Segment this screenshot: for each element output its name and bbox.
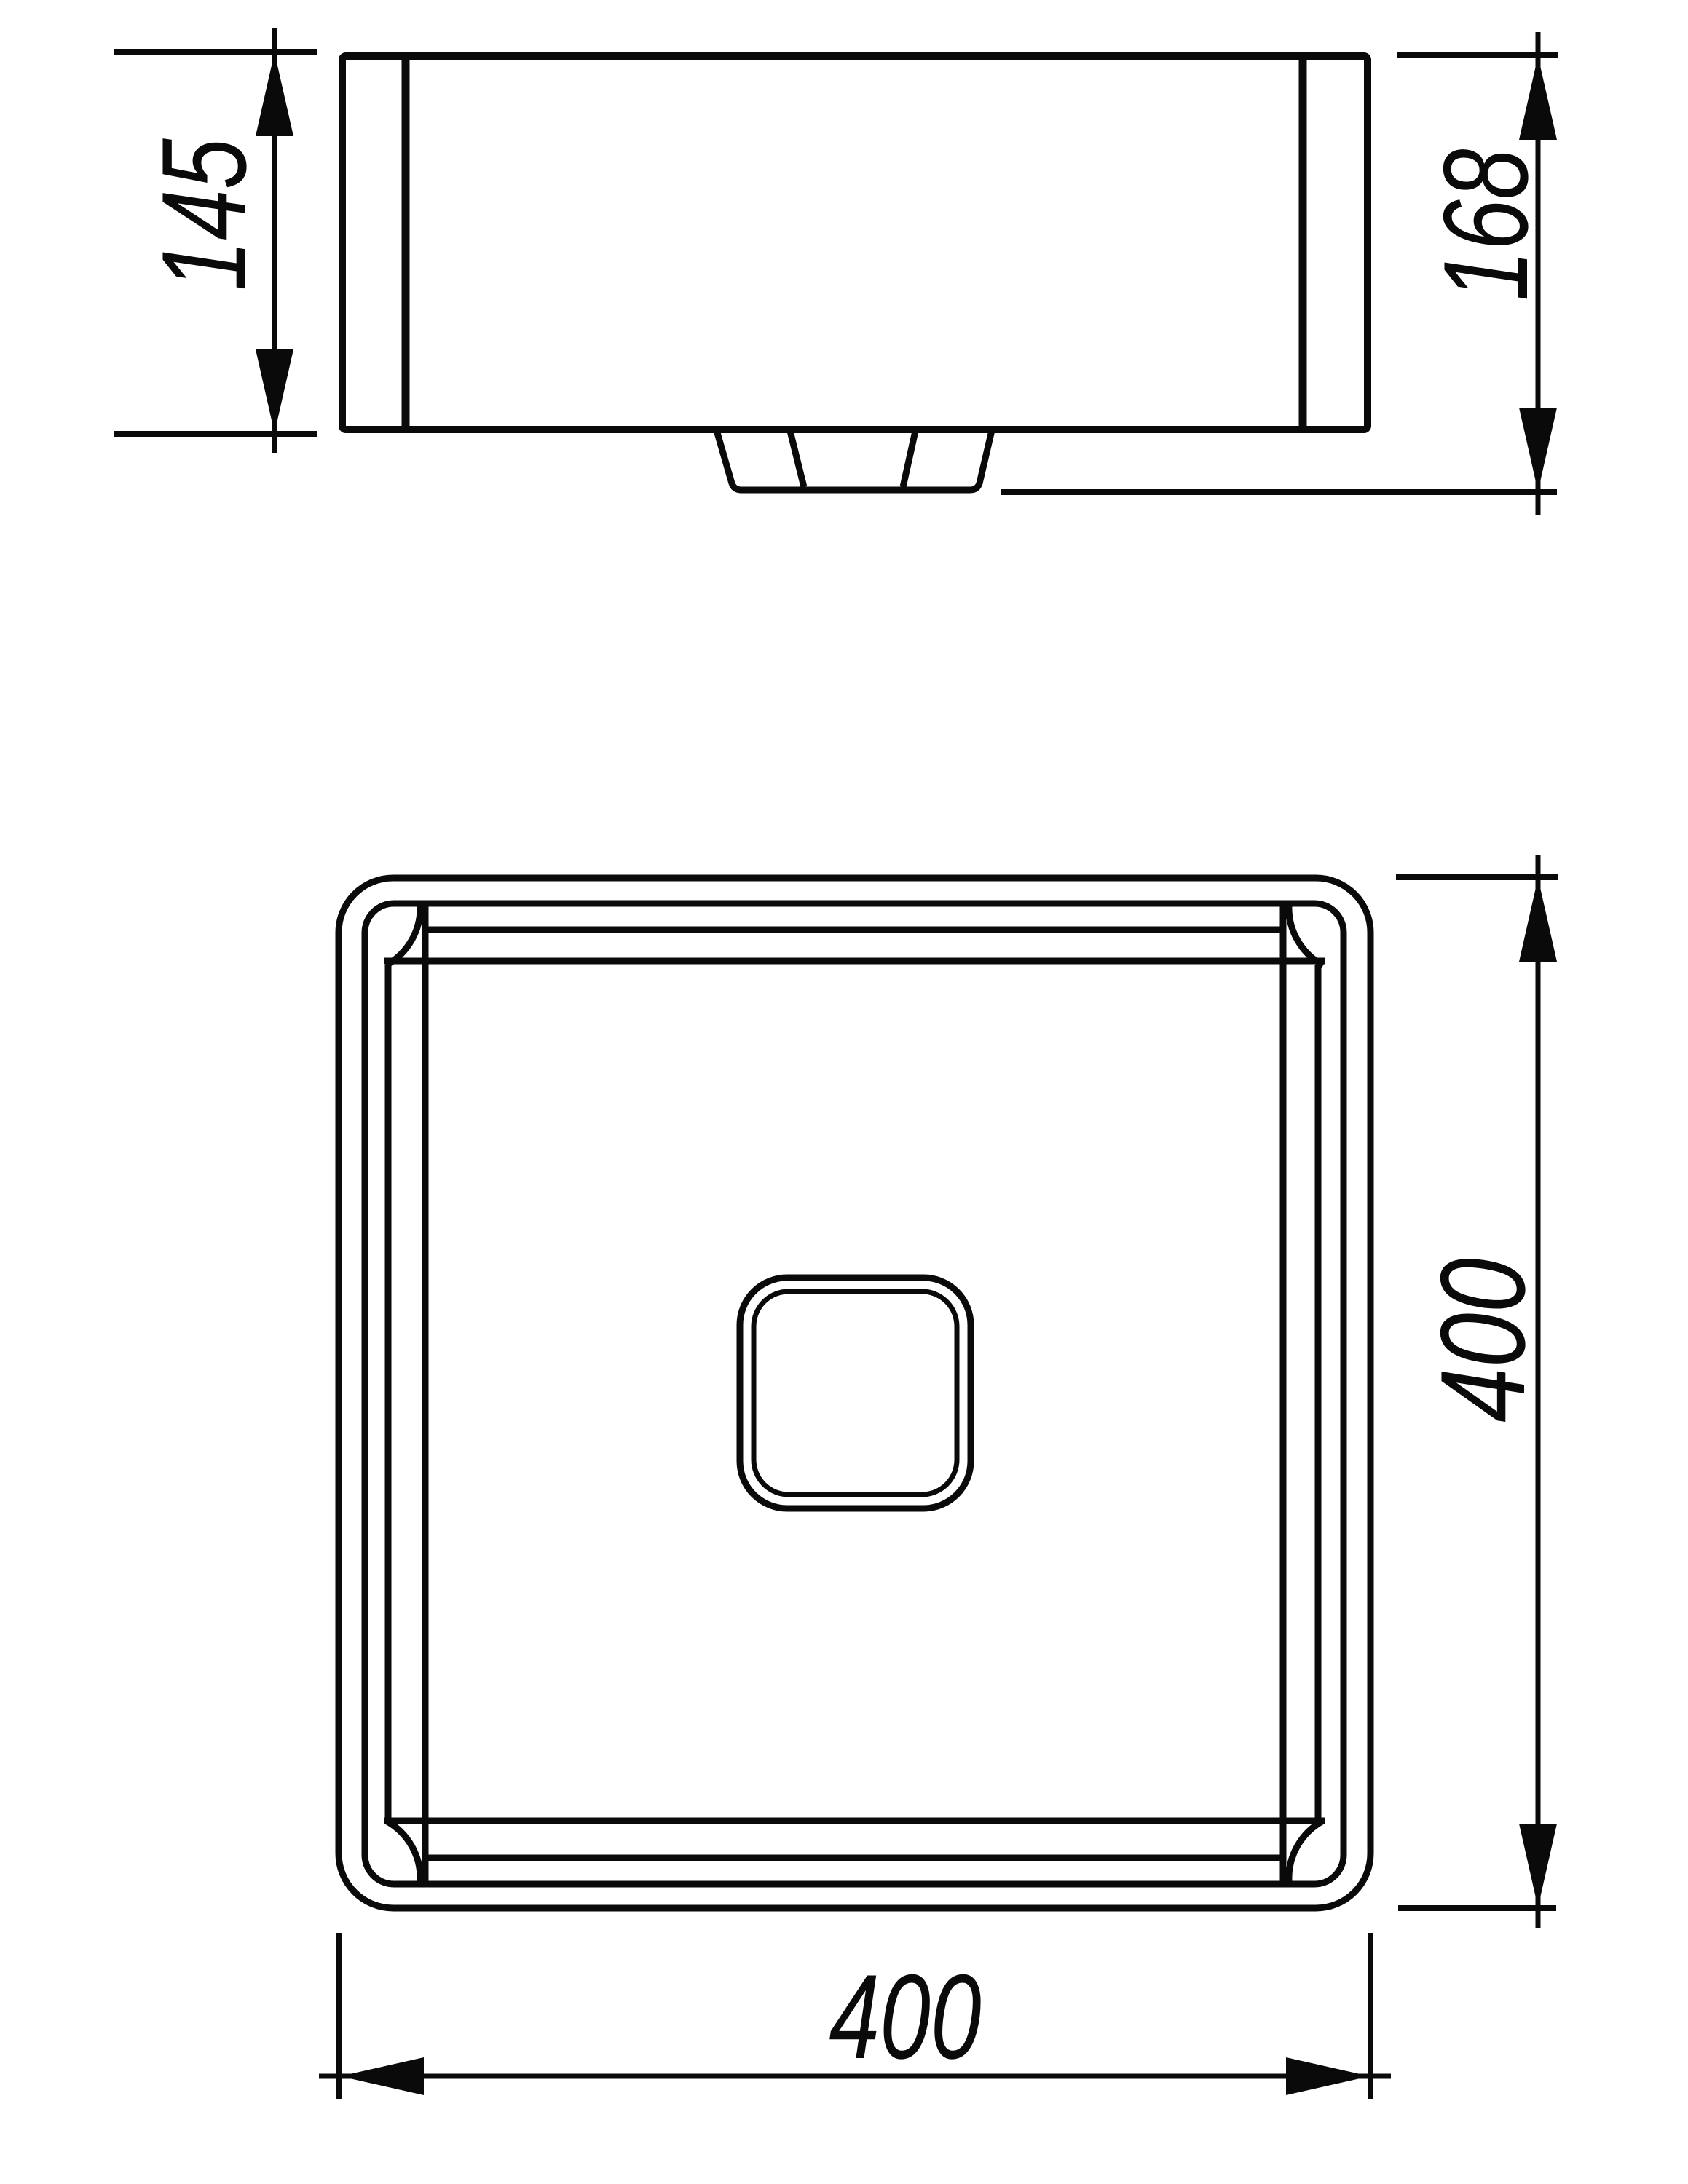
svg-text:168: 168: [1419, 149, 1553, 301]
svg-text:145: 145: [137, 138, 272, 291]
svg-text:400: 400: [1415, 1258, 1550, 1423]
svg-text:400: 400: [829, 1950, 981, 2084]
